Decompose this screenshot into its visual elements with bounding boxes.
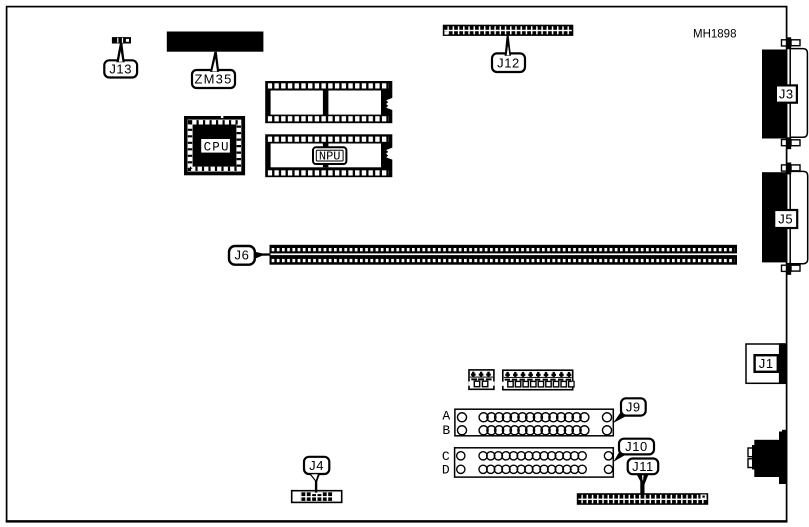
svg-text:B: B [442, 423, 450, 438]
svg-text:J5: J5 [778, 212, 793, 227]
svg-text:J3: J3 [779, 86, 794, 101]
svg-text:ZM35: ZM35 [194, 72, 232, 87]
svg-text:J11: J11 [632, 459, 654, 474]
svg-text:J1: J1 [759, 356, 774, 371]
svg-text:NPU: NPU [319, 150, 341, 164]
svg-text:A: A [442, 409, 450, 424]
svg-text:J13: J13 [109, 61, 132, 76]
svg-text:CPU: CPU [204, 140, 230, 154]
svg-text:J6: J6 [235, 248, 250, 263]
svg-text:D: D [442, 463, 450, 478]
svg-text:J12: J12 [497, 56, 520, 71]
svg-text:MH1898: MH1898 [693, 28, 736, 40]
svg-text:J10: J10 [625, 439, 648, 454]
svg-text:J4: J4 [309, 458, 324, 473]
svg-text:J9: J9 [626, 399, 641, 414]
